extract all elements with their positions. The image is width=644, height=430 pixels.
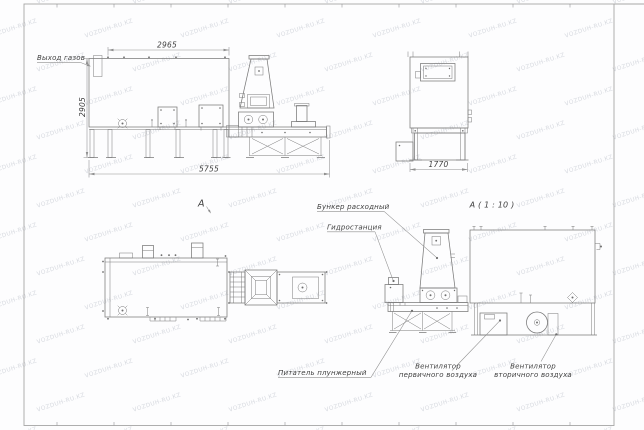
view-front-elevation: 2965 2905 5755 Выход газов А	[37, 41, 330, 214]
dim-overall-length: 5755	[199, 165, 219, 174]
chimney	[240, 56, 275, 109]
dimension-front-width: 2965	[108, 41, 229, 56]
plan-valve-symbol	[118, 306, 128, 316]
hopper-label: Бункер расходный	[317, 203, 390, 211]
view-a-marker-label: А	[197, 199, 205, 210]
primary-fan-label-line2: первичного воздуха	[399, 371, 477, 379]
plunger-feeder-callout: Питатель плунжерный	[278, 310, 413, 378]
primary-air-fan	[480, 313, 507, 335]
fan-housing-section	[420, 288, 467, 303]
secondary-fan-label-line2: вторичного воздуха	[494, 371, 572, 379]
primary-fan-callout: Вентилятор первичного воздуха	[399, 319, 501, 379]
plan-body	[105, 258, 227, 317]
plunger-feeder	[388, 303, 468, 312]
dimension-end-width: 1770	[410, 160, 468, 172]
dim-end-width: 1770	[429, 160, 449, 169]
secondary-fan-label-line1: Вентилятор	[510, 363, 556, 371]
plan-hopper	[245, 270, 277, 305]
plan-coupling	[230, 272, 245, 303]
view-end-elevation: 1770	[396, 52, 472, 173]
primary-fan-label-line1: Вентилятор	[415, 363, 461, 371]
dim-front-width: 2965	[157, 41, 177, 50]
drawing-sheet: VOZDUH-RU.KZVOZDUH-RU.KZVOZDUH-RU.KZVOZD…	[0, 0, 644, 430]
support-legs-front	[88, 130, 231, 158]
view-section-a: А ( 1 : 10 )	[385, 201, 602, 336]
dimension-front-height: 2905	[78, 59, 89, 158]
furnace-body	[89, 56, 229, 130]
view-plan	[102, 243, 327, 321]
plan-fan-duct	[277, 271, 327, 304]
fan-housing-front	[239, 112, 274, 127]
secondary-fan-callout: Вентилятор вторичного воздуха	[494, 333, 572, 379]
drawing-canvas: 2965 2905 5755 Выход газов А	[0, 0, 644, 430]
secondary-duct-front	[292, 104, 316, 128]
end-base	[396, 128, 469, 161]
gas-outlet-label: Выход газов	[37, 54, 85, 62]
trestle-section	[389, 312, 456, 333]
view-a-marker: А	[197, 199, 211, 214]
hydraulic-station-callout: Гидростанция	[327, 224, 395, 283]
end-body	[410, 57, 468, 128]
dimension-overall-length: 5755	[89, 140, 330, 178]
gas-outlet-callout: Выход газов	[37, 54, 91, 66]
end-hatch	[416, 64, 456, 82]
section-title: А ( 1 : 10 )	[469, 201, 515, 210]
secondary-air-fan	[527, 312, 559, 335]
dim-front-height: 2905	[78, 97, 87, 117]
plunger-feeder-label: Питатель плунжерный	[278, 369, 367, 377]
section-body	[470, 226, 602, 335]
hydraulic-station-label: Гидростанция	[327, 224, 382, 232]
trestle-front	[246, 137, 325, 158]
